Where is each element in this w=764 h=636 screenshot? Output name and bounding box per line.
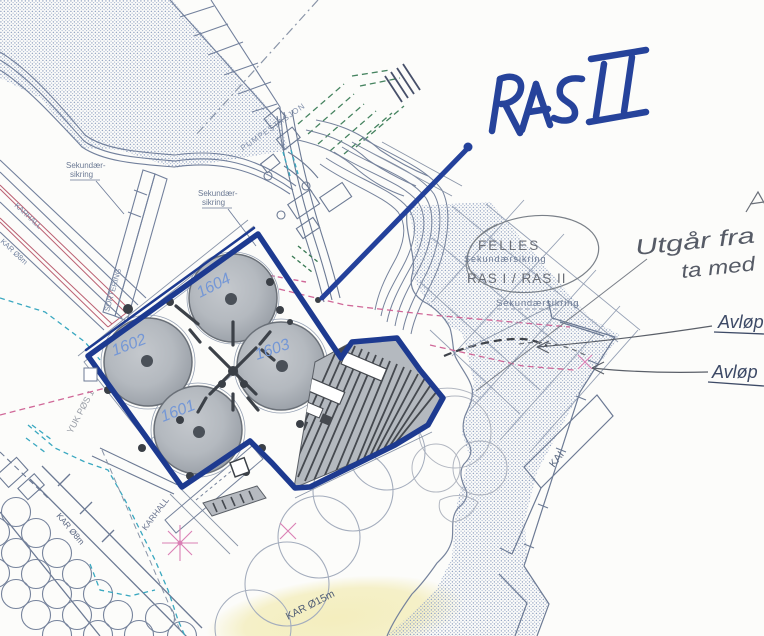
svg-text:Avløp: Avløp [717, 312, 764, 332]
svg-text:Avløp: Avløp [711, 362, 758, 382]
svg-text:Sekundær-: Sekundær- [66, 161, 106, 170]
svg-text:FELLES: FELLES [478, 238, 540, 253]
svg-text:Sekundærsikring: Sekundærsikring [496, 298, 579, 309]
svg-text:sikring: sikring [70, 170, 93, 179]
svg-text:RAS I / RAS II: RAS I / RAS II [467, 271, 567, 286]
svg-text:Sekundær-: Sekundær- [198, 189, 238, 198]
svg-text:sikring: sikring [202, 198, 225, 207]
svg-text:Sekundærsikring: Sekundærsikring [464, 254, 547, 264]
